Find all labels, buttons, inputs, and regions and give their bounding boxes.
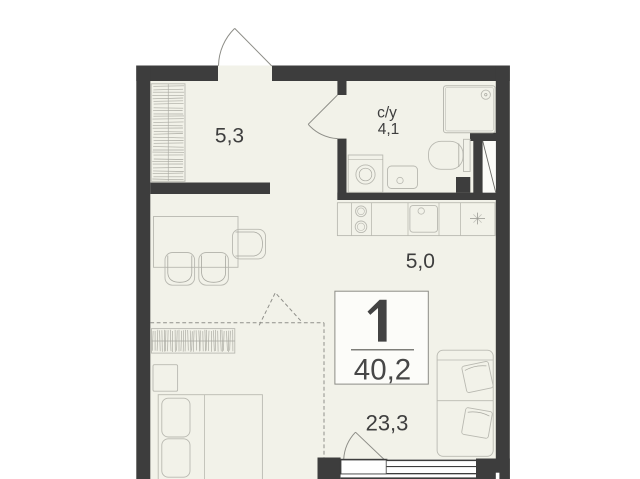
svg-text:с/у: с/у [377,104,397,121]
svg-text:4,1: 4,1 [378,121,400,138]
svg-text:5,0: 5,0 [406,250,435,273]
svg-text:5,3: 5,3 [215,124,244,147]
svg-text:23,3: 23,3 [366,410,409,435]
svg-text:40,2: 40,2 [354,353,411,386]
